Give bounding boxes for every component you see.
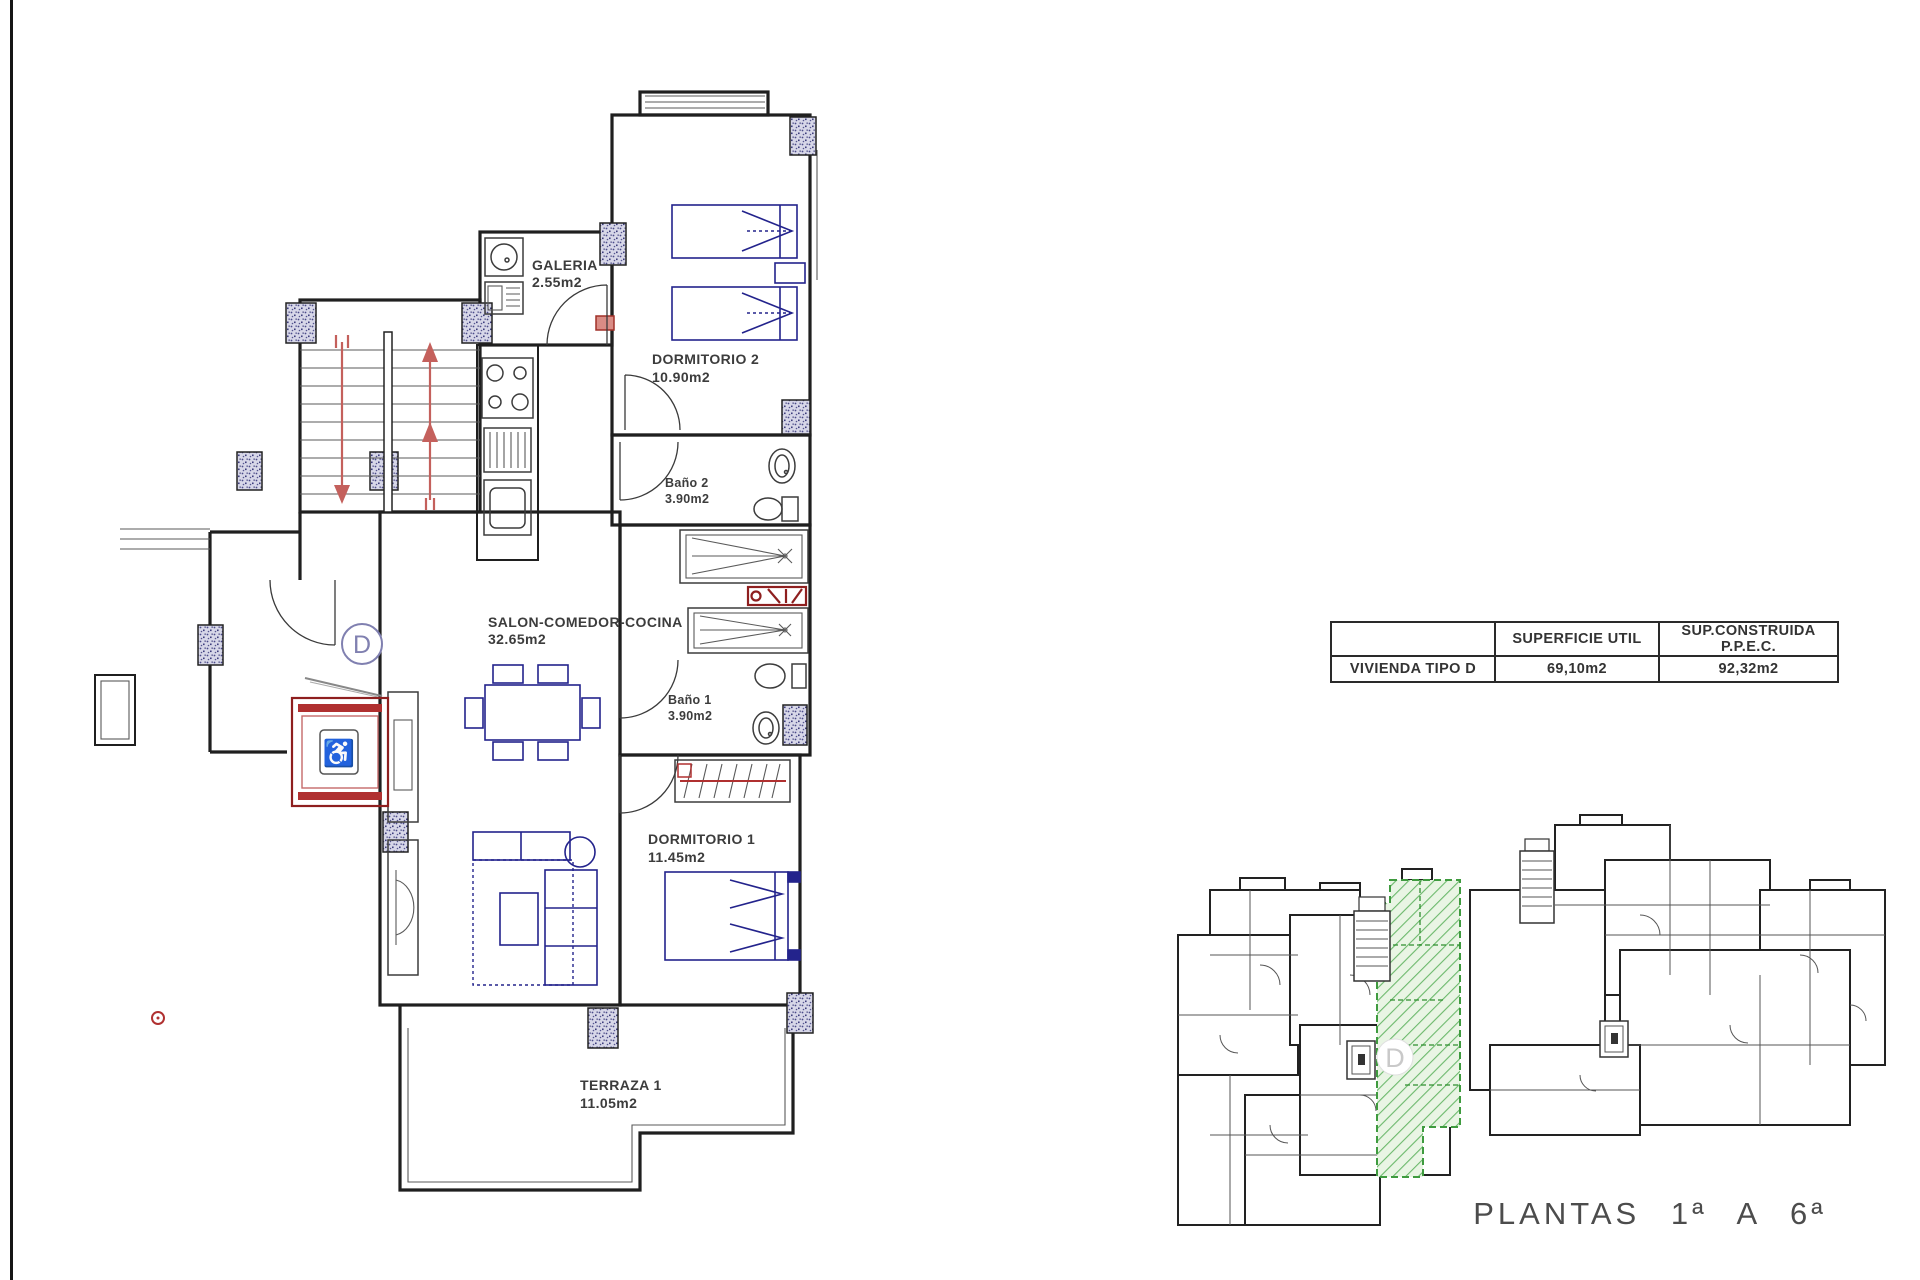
- room-labels: GALERIA 2.55m2 DORMITORIO 2 10.90m2 Baño…: [488, 257, 759, 1111]
- room-area: 3.90m2: [665, 492, 709, 506]
- room-label: GALERIA: [532, 257, 598, 273]
- room-label: Baño 2: [665, 476, 708, 490]
- dishwasher-icon: [484, 428, 531, 472]
- toilet-icon: [755, 664, 785, 688]
- double-bed-icon: [665, 872, 800, 960]
- table-header-superficie: SUPERFICIE UTIL: [1495, 622, 1659, 656]
- room-area: 3.90m2: [668, 709, 712, 723]
- stair-down-arrow-icon: [334, 335, 350, 504]
- room-label: DORMITORIO 2: [652, 351, 759, 367]
- room-label: Baño 1: [668, 693, 711, 707]
- apartment-floorplan: ♿ D GALERIA 2.55m2 DORMITORIO 2 10.90m2 …: [80, 80, 840, 1250]
- unit-d-badge: D: [342, 624, 382, 664]
- toilet-icon: [754, 498, 782, 520]
- entrance-door: [270, 580, 335, 645]
- dining-table-icon: [465, 665, 600, 760]
- room-area: 10.90m2: [652, 369, 710, 385]
- building-overview-plan: D: [1150, 795, 1895, 1265]
- floorplan-sheet: ♿ D GALERIA 2.55m2 DORMITORIO 2 10.90m2 …: [0, 0, 1920, 1280]
- coffee-table-icon: [500, 893, 538, 945]
- table-cell-superficie-util: 69,10m2: [1495, 656, 1659, 682]
- shower-icon: [688, 608, 808, 653]
- sink-icon: [769, 449, 795, 483]
- kitchen: [482, 358, 533, 535]
- red-marks: [152, 1012, 164, 1024]
- closet-icon: [675, 760, 790, 802]
- sheet-border-line: [10, 0, 13, 1280]
- water-heater-icon: [748, 587, 806, 605]
- table-header-blank: [1331, 622, 1495, 656]
- bathroom1-fixtures: [753, 712, 779, 744]
- room-area: 11.45m2: [648, 849, 705, 865]
- stairwell: [300, 332, 480, 512]
- overview-unit-d-marker: D: [1377, 1039, 1413, 1075]
- showers: [680, 530, 808, 688]
- room-area: 2.55m2: [532, 274, 582, 290]
- galeria-red-fixture: [596, 316, 614, 330]
- summary-table: SUPERFICIE UTIL SUP.CONSTRUIDA P.P.E.C. …: [1330, 621, 1839, 683]
- room-label: SALON-COMEDOR-COCINA: [488, 614, 683, 630]
- room-area: 11.05m2: [580, 1095, 637, 1111]
- table-header-construida: SUP.CONSTRUIDA P.P.E.C.: [1659, 622, 1838, 656]
- stair-up-arrow-icon: [422, 342, 438, 510]
- sink-icon: [753, 712, 779, 744]
- room-area: 32.65m2: [488, 631, 546, 647]
- twin-beds-icon: [672, 205, 805, 340]
- bathroom2-fixtures: [754, 449, 798, 521]
- sofa-set-icon: [473, 832, 597, 985]
- wheelchair-icon: ♿: [323, 738, 355, 768]
- shower-icon: [680, 530, 808, 583]
- room-label: TERRAZA 1: [580, 1077, 662, 1093]
- overview-caption: PLANTAS 1ª A 6ª: [1470, 1196, 1830, 1232]
- room-label: DORMITORIO 1: [648, 831, 755, 847]
- overview-unit-letter: D: [1385, 1043, 1405, 1073]
- table-cell-sup-construida: 92,32m2: [1659, 656, 1838, 682]
- table-cell-vivienda: VIVIENDA TIPO D: [1331, 656, 1495, 682]
- stair-core-icon: [1520, 851, 1554, 923]
- table-row: VIVIENDA TIPO D 69,10m2 92,32m2: [1331, 656, 1838, 682]
- rug-icon: [473, 860, 573, 985]
- elevator: ♿: [292, 678, 388, 806]
- unit-letter: D: [353, 631, 371, 659]
